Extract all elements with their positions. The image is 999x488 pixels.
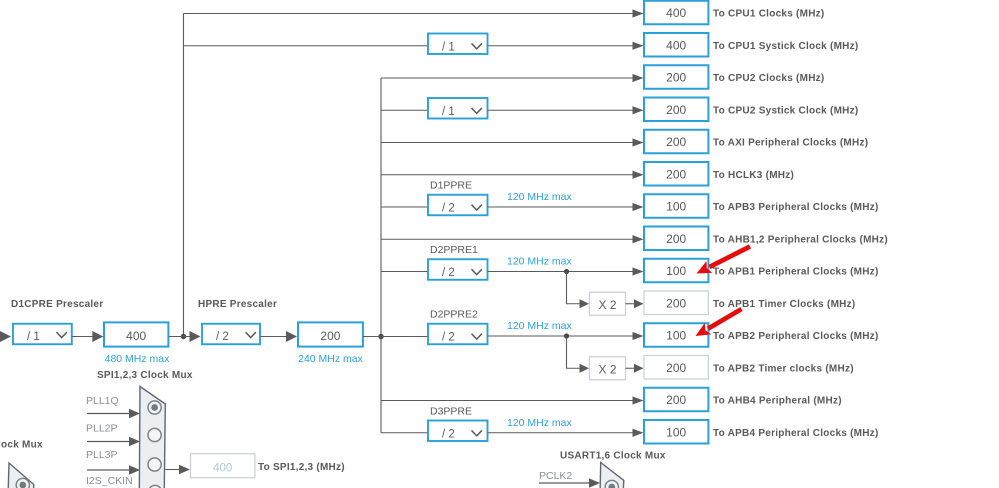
svg-text:/ 2: / 2 [442, 267, 455, 279]
svg-text:lock Mux: lock Mux [0, 440, 43, 451]
svg-text:200: 200 [666, 393, 686, 407]
svg-text:To APB1 Timer Clocks (MHz): To APB1 Timer Clocks (MHz) [713, 299, 855, 310]
svg-text:To CPU1 Clocks (MHz): To CPU1 Clocks (MHz) [713, 9, 825, 20]
svg-text:120 MHz max: 120 MHz max [507, 191, 573, 203]
svg-text:PLL3P: PLL3P [86, 449, 118, 461]
svg-text:D2PPRE2: D2PPRE2 [430, 309, 478, 321]
svg-text:400: 400 [213, 463, 232, 475]
svg-text:/ 1: / 1 [27, 331, 40, 343]
svg-text:/ 1: / 1 [442, 106, 455, 118]
svg-text:D3PPRE: D3PPRE [430, 405, 472, 417]
svg-text:X 2: X 2 [598, 298, 616, 312]
svg-text:400: 400 [666, 6, 686, 20]
svg-text:400: 400 [666, 38, 686, 52]
svg-text:To APB1 Peripheral Clocks (MHz: To APB1 Peripheral Clocks (MHz) [713, 267, 879, 278]
svg-text:I2S_CKIN: I2S_CKIN [86, 475, 133, 487]
svg-text:200: 200 [666, 167, 686, 181]
svg-text:D1PPRE: D1PPRE [430, 180, 472, 192]
svg-text:200: 200 [666, 135, 686, 149]
svg-text:To AHB4 Peripheral (MHz): To AHB4 Peripheral (MHz) [713, 396, 842, 407]
svg-text:/ 2: / 2 [442, 332, 455, 344]
svg-text:200: 200 [666, 296, 686, 310]
svg-text:120 MHz max: 120 MHz max [507, 256, 573, 268]
svg-text:PLL2P: PLL2P [86, 423, 118, 435]
svg-text:200: 200 [666, 103, 686, 117]
svg-text:PLL1Q: PLL1Q [86, 395, 119, 407]
svg-text:120 MHz max: 120 MHz max [507, 320, 573, 332]
svg-text:100: 100 [666, 329, 686, 343]
svg-text:/ 2: / 2 [442, 203, 455, 215]
svg-text:To CPU2 Clocks (MHz): To CPU2 Clocks (MHz) [713, 73, 825, 84]
svg-text:To AXI Peripheral Clocks (MHz): To AXI Peripheral Clocks (MHz) [713, 138, 868, 149]
svg-text:To SPI1,2,3 (MHz): To SPI1,2,3 (MHz) [258, 462, 345, 473]
svg-text:200: 200 [666, 361, 686, 375]
svg-text:PCLK2: PCLK2 [539, 470, 572, 482]
svg-text:To CPU2 Systick Clock (MHz): To CPU2 Systick Clock (MHz) [713, 105, 858, 116]
svg-text:To AHB1,2 Peripheral Clocks (M: To AHB1,2 Peripheral Clocks (MHz) [713, 234, 888, 245]
svg-text:To CPU1 Systick Clock (MHz): To CPU1 Systick Clock (MHz) [713, 41, 858, 52]
svg-text:200: 200 [320, 329, 340, 343]
svg-text:D1CPRE Prescaler: D1CPRE Prescaler [11, 299, 103, 310]
svg-text:To APB2 Timer clocks (MHz): To APB2 Timer clocks (MHz) [713, 363, 854, 374]
svg-text:100: 100 [666, 425, 686, 439]
svg-text:/ 2: / 2 [442, 428, 455, 440]
svg-text:HPRE Prescaler: HPRE Prescaler [198, 299, 277, 310]
svg-text:100: 100 [666, 264, 686, 278]
svg-text:SPI1,2,3 Clock Mux: SPI1,2,3 Clock Mux [97, 370, 193, 381]
svg-text:240 MHz max: 240 MHz max [298, 353, 364, 365]
svg-text:D2PPRE1: D2PPRE1 [430, 244, 478, 256]
svg-text:200: 200 [666, 71, 686, 85]
svg-text:200: 200 [666, 232, 686, 246]
svg-text:120 MHz max: 120 MHz max [507, 417, 573, 429]
svg-text:100: 100 [666, 200, 686, 214]
svg-text:To APB3 Peripheral Clocks (MHz: To APB3 Peripheral Clocks (MHz) [713, 202, 879, 213]
svg-text:To HCLK3 (MHz): To HCLK3 (MHz) [713, 170, 794, 181]
svg-text:400: 400 [126, 329, 146, 343]
svg-text:480 MHz max: 480 MHz max [105, 353, 171, 365]
svg-text:/ 2: / 2 [216, 331, 229, 343]
svg-text:X 2: X 2 [598, 362, 616, 376]
svg-text:/ 1: / 1 [442, 41, 455, 53]
svg-text:To APB2 Peripheral Clocks (MHz: To APB2 Peripheral Clocks (MHz) [713, 331, 879, 342]
svg-text:USART1,6 Clock Mux: USART1,6 Clock Mux [560, 451, 666, 462]
svg-text:To APB4 Peripheral Clocks (MHz: To APB4 Peripheral Clocks (MHz) [713, 428, 879, 439]
